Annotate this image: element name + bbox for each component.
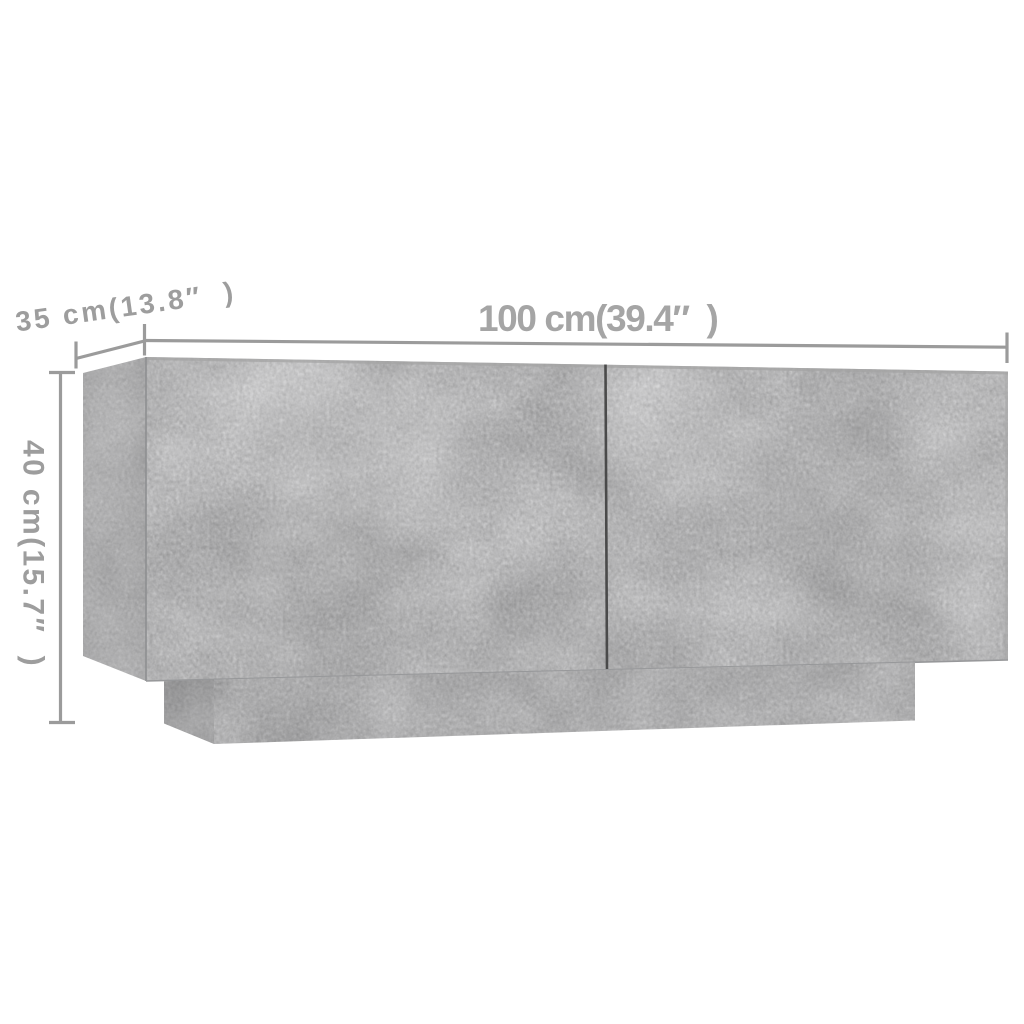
svg-text:100 cm(39.4″ ): 100 cm(39.4″ ) — [478, 298, 718, 339]
svg-text:40 cm(15.7″ ): 40 cm(15.7″ ) — [17, 440, 50, 668]
